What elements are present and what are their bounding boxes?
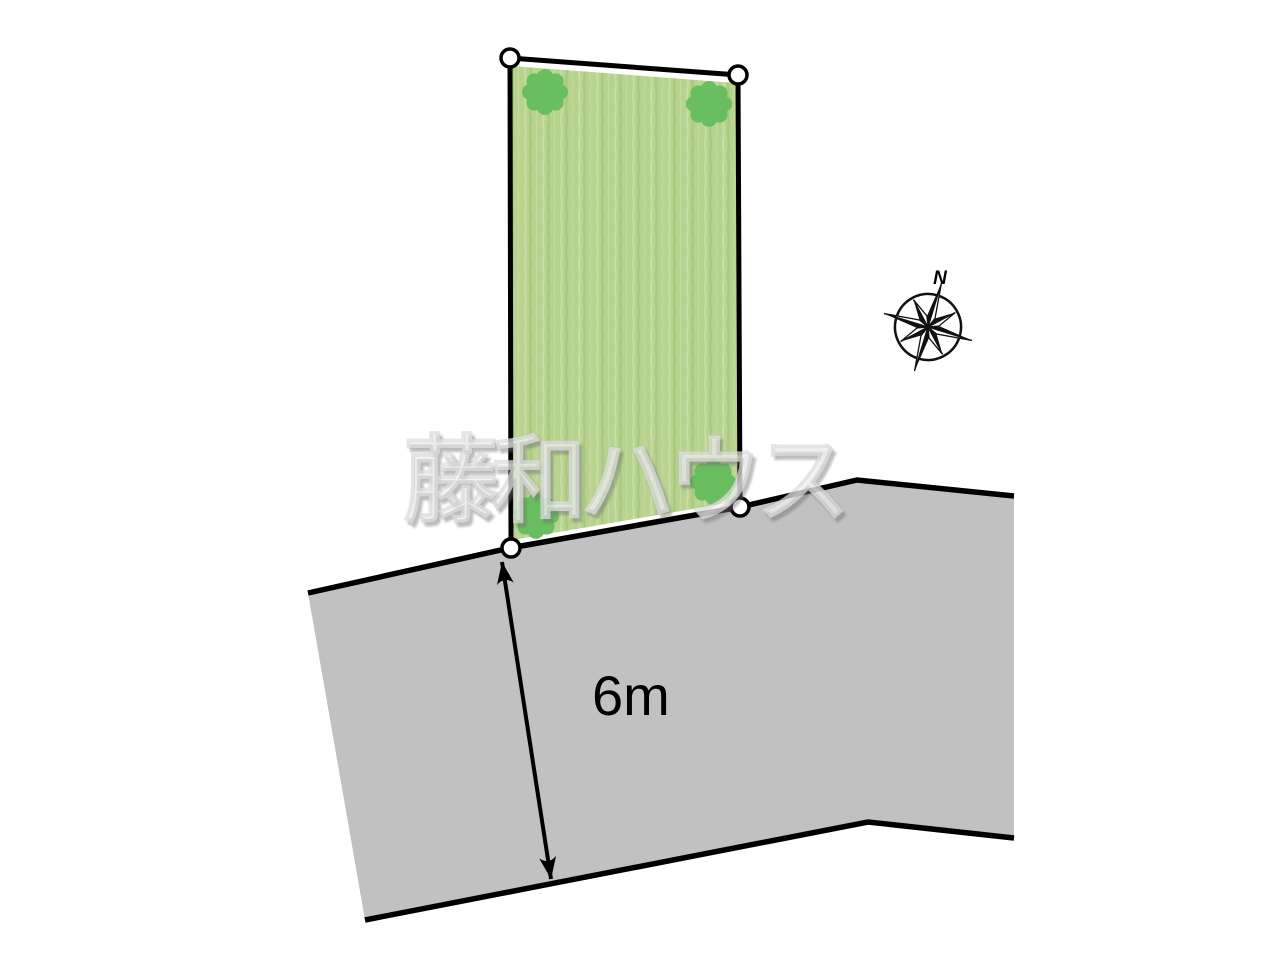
compass-north-label: N: [933, 268, 948, 289]
road-width-label: 6m: [592, 664, 670, 727]
corner-marker: [502, 539, 520, 557]
tree-icon: [513, 493, 559, 539]
site-plan-canvas: 6m N 藤和ハウス: [0, 0, 1280, 960]
tree-icon: [522, 69, 568, 115]
corner-marker: [501, 49, 519, 67]
tree-icon: [686, 81, 732, 127]
corner-marker: [729, 66, 747, 84]
site-plan-svg: 6m N: [0, 0, 1280, 960]
compass-rose: [871, 270, 986, 385]
tree-icon: [690, 459, 736, 505]
corner-marker: [731, 498, 749, 516]
compass-star-light: [871, 270, 986, 385]
